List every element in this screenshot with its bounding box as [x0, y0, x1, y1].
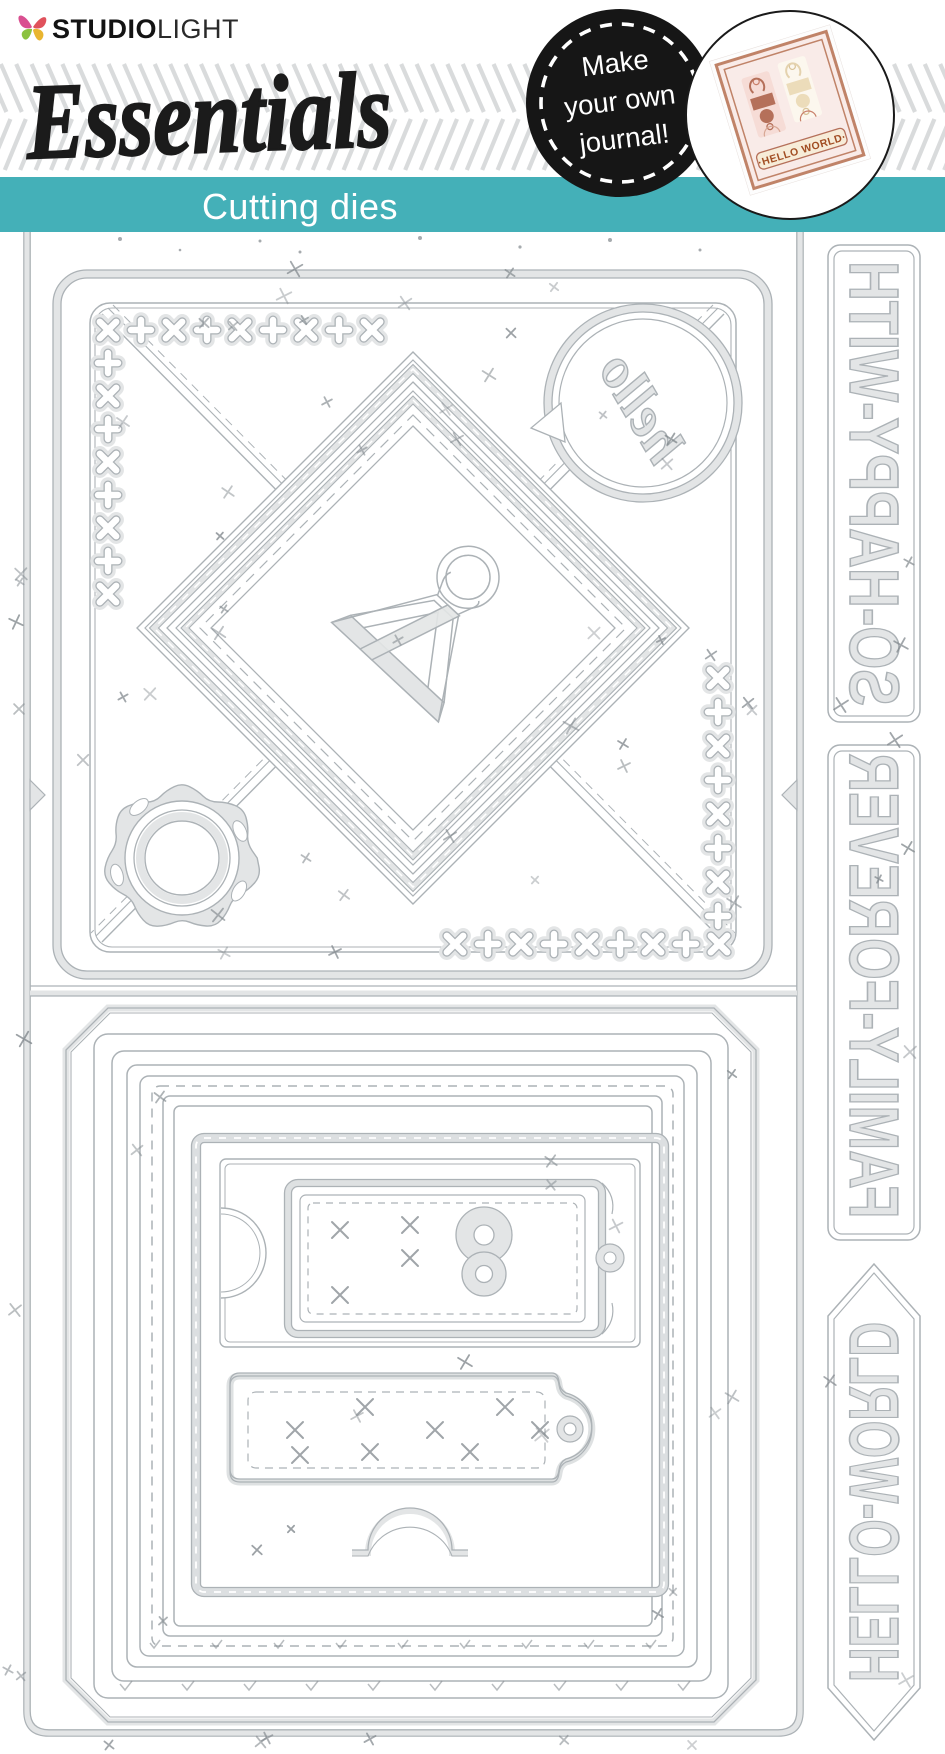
svg-text:Cutting dies: Cutting dies: [202, 186, 398, 227]
svg-text:Essentials: Essentials: [23, 51, 393, 183]
svg-text:STUDIOLIGHT: STUDIOLIGHT: [52, 14, 239, 44]
svg-text:FAMILY-FOREVER: FAMILY-FOREVER: [835, 754, 913, 1219]
svg-text:SO-HAPPY-WITH: SO-HAPPY-WITH: [835, 261, 913, 706]
svg-text:HELLO-WORLD: HELLO-WORLD: [835, 1322, 913, 1682]
